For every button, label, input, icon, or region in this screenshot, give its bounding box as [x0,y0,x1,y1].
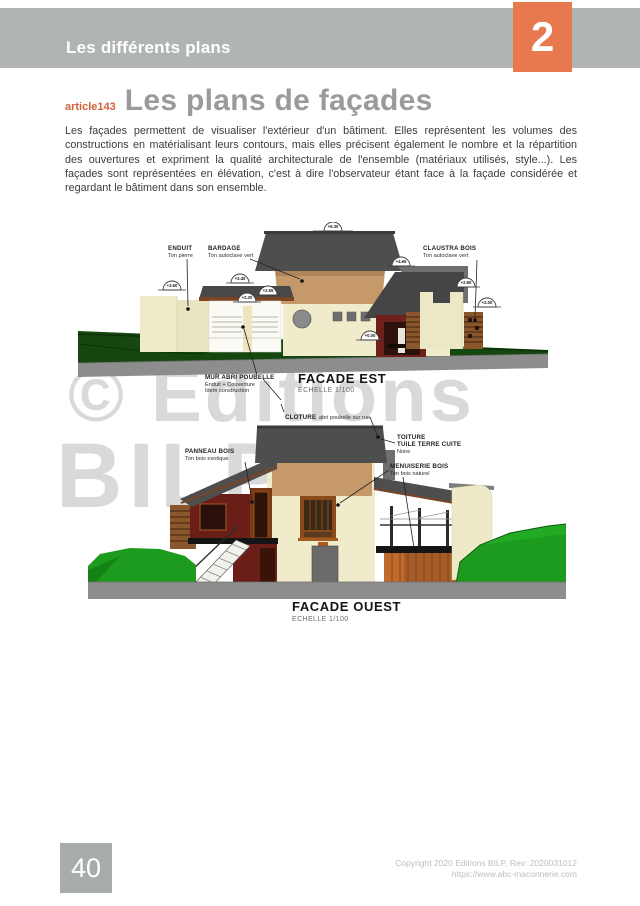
elevation-marker: +2.40 [226,274,254,283]
elevation-marker: +3.60 [158,281,186,290]
door [312,546,338,583]
elevation-value: +2.55 [263,288,274,293]
svg-text:PANNEAU BOIS: PANNEAU BOIS [185,448,234,455]
square-window [347,312,356,321]
elevation-value: +6.30 [328,224,339,229]
svg-text:TUILE TERRE CUITE: TUILE TERRE CUITE [397,441,461,448]
svg-text:Noire: Noire [397,449,410,455]
facade-est-drawing: +3.60 +2.40 +2.30 +2.55 +6.30 +4.65 +2.8… [75,222,565,400]
svg-text:abri poubelle sur rue: abri poubelle sur rue [319,415,370,421]
svg-text:Ton pierre: Ton pierre [168,253,193,259]
svg-text:TOITURE: TOITURE [397,434,425,441]
elevation-value: +2.80 [461,280,472,285]
facade-est-left-annex [140,286,294,352]
elevation-value: +3.60 [167,283,178,288]
elevation-marker: +2.00 [473,298,501,307]
svg-text:Ton bois naturel: Ton bois naturel [390,471,430,477]
elevation-value: +2.40 [235,276,246,281]
elevation-value: +2.30 [242,295,253,300]
round-window [293,310,311,328]
elevation-value: +0.00 [365,333,376,338]
svg-text:Ton autoclave vert: Ton autoclave vert [208,253,254,259]
svg-text:MENUISERIE BOIS: MENUISERIE BOIS [390,463,448,470]
garage-wall [384,553,458,584]
claustra-panel [464,312,483,349]
facade-ouest-drawing: CLOTURE abri poubelle sur rue TOITURE TU… [88,403,570,628]
wood-panel [250,488,272,542]
svg-text:BARDAGE: BARDAGE [208,245,241,252]
svg-text:ENDUIT: ENDUIT [168,245,192,252]
facade-ouest-title: FACADE OUEST [292,599,401,614]
facade-est-scale: ECHELLE 1/100 [298,387,355,394]
svg-text:CLOTURE: CLOTURE [285,414,316,421]
svg-text:Ton bois exotique: Ton bois exotique [185,456,229,462]
elevation-marker: +6.30 [313,222,353,231]
square-window [333,312,342,321]
facade-est-title: FACADE EST [298,371,386,386]
facade-ouest-scale: ECHELLE 1/100 [292,616,349,623]
svg-text:CLAUSTRA BOIS: CLAUSTRA BOIS [423,245,476,252]
elevation-value: +4.65 [396,259,407,264]
svg-text:Ton autoclave vert: Ton autoclave vert [423,253,469,259]
elevation-value: +2.00 [482,300,493,305]
document-page: © Editions BILP Les différents plans 2 a… [0,0,640,906]
wood-window [298,496,338,541]
svg-text:Idem construction: Idem construction [205,388,249,394]
